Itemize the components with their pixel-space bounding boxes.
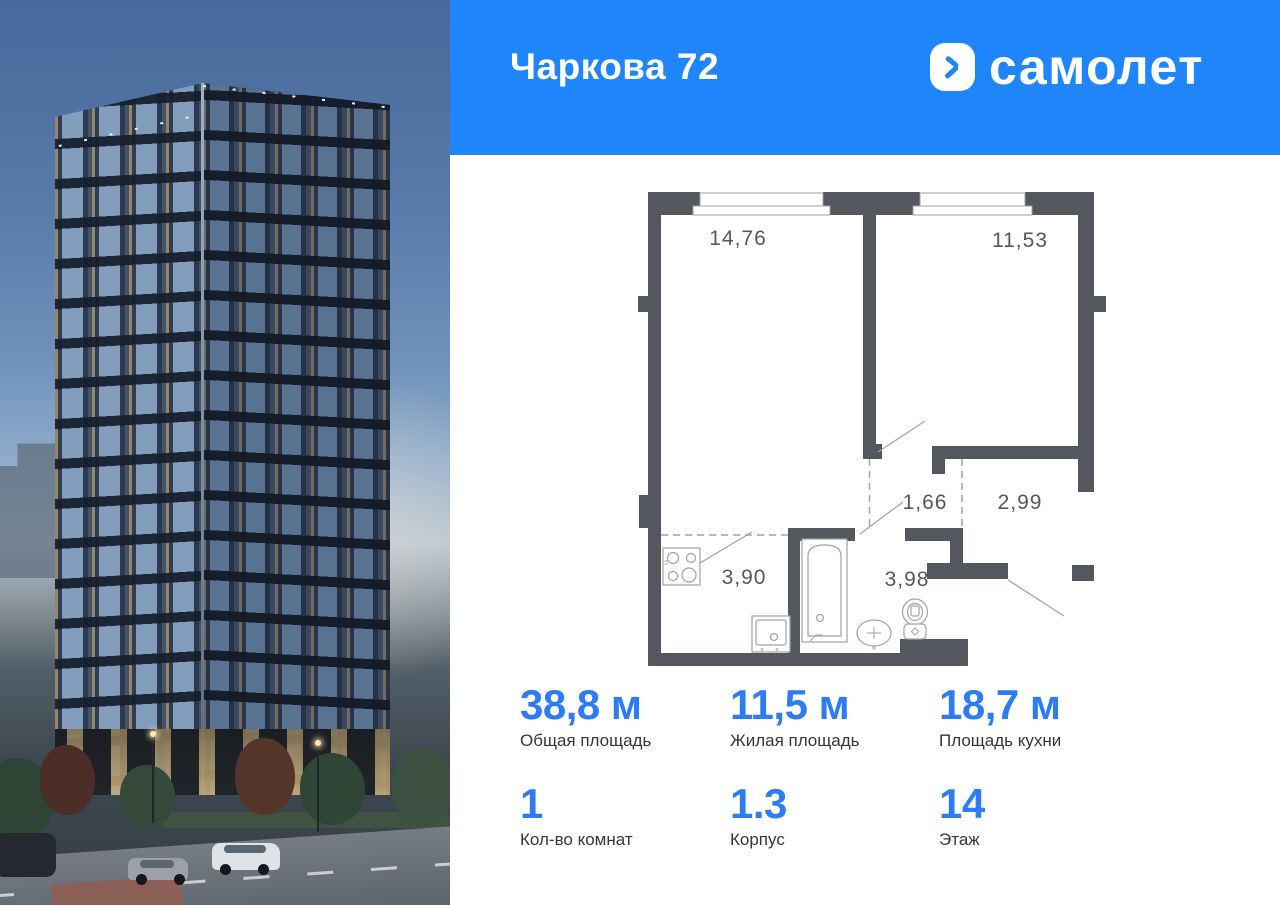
floor-plan: 14,76 11,53 1,66 2,99 3,90 3,98 [648,192,1094,666]
stat-label: Общая площадь [520,730,730,751]
stat-label: Кол-во комнат [520,829,730,850]
tower-facade-left [55,83,203,795]
apartment-card: Чаркова 72 самолет [0,0,1280,905]
stat-building: 1.3 Корпус [730,781,939,850]
stat-living-area: 11,5 м Жилая площадь [730,682,939,751]
window-grid [55,83,203,795]
stat-value: 1 [520,781,730,827]
street-lamp [152,735,154,823]
residential-tower [55,83,390,795]
stat-total-area: 38,8 м Общая площадь [520,682,730,751]
tower-facade-right [203,83,390,795]
car [0,833,56,877]
stats-grid: 38,8 м Общая площадь 11,5 м Жилая площад… [520,682,1179,850]
room-area-kitchen: 3,90 [722,566,767,589]
info-panel: Чаркова 72 самолет [450,0,1280,905]
brand-logo: самолет [930,43,1204,91]
room-area-corridor: 2,99 [998,491,1043,514]
plan-walls [638,192,1106,666]
stat-label: Жилая площадь [730,730,939,751]
stat-kitchen-area: 18,7 м Площадь кухни [939,682,1179,751]
tree [40,745,95,815]
toilet-icon [903,599,928,639]
project-title: Чаркова 72 [510,46,719,88]
stat-rooms-count: 1 Кол-во комнат [520,781,730,850]
street-lamp [317,744,319,832]
stat-label: Корпус [730,829,939,850]
room-area-living: 14,76 [709,227,767,250]
building-photo [0,0,450,905]
brand-name: самолет [989,43,1204,91]
tree [392,748,450,826]
stat-value: 38,8 м [520,682,730,728]
stat-label: Этаж [939,829,1179,850]
stat-value: 14 [939,781,1179,827]
stat-value: 1.3 [730,781,939,827]
tree [300,753,365,825]
stat-label: Площадь кухни [939,730,1179,751]
window-grid [203,83,390,795]
stove-icon [663,548,700,585]
room-area-hall: 1,66 [903,491,948,514]
car [212,843,280,870]
room-area-bathroom: 3,98 [885,568,930,591]
tree [120,765,175,827]
room-area-labels: 14,76 11,53 1,66 2,99 3,90 3,98 [709,227,1048,591]
header: Чаркова 72 самолет [450,0,1280,155]
tower-corner [201,83,204,795]
car [128,858,188,880]
samolet-arrow-icon [930,43,975,91]
stat-value: 18,7 м [939,682,1179,728]
washbasin-icon [857,620,891,649]
kitchen-sink-icon [752,616,790,652]
stat-floor: 14 Этаж [939,781,1179,850]
room-area-bedroom: 11,53 [992,229,1048,252]
tree [235,738,295,815]
bathtub-icon [802,539,847,642]
stat-value: 11,5 м [730,682,939,728]
